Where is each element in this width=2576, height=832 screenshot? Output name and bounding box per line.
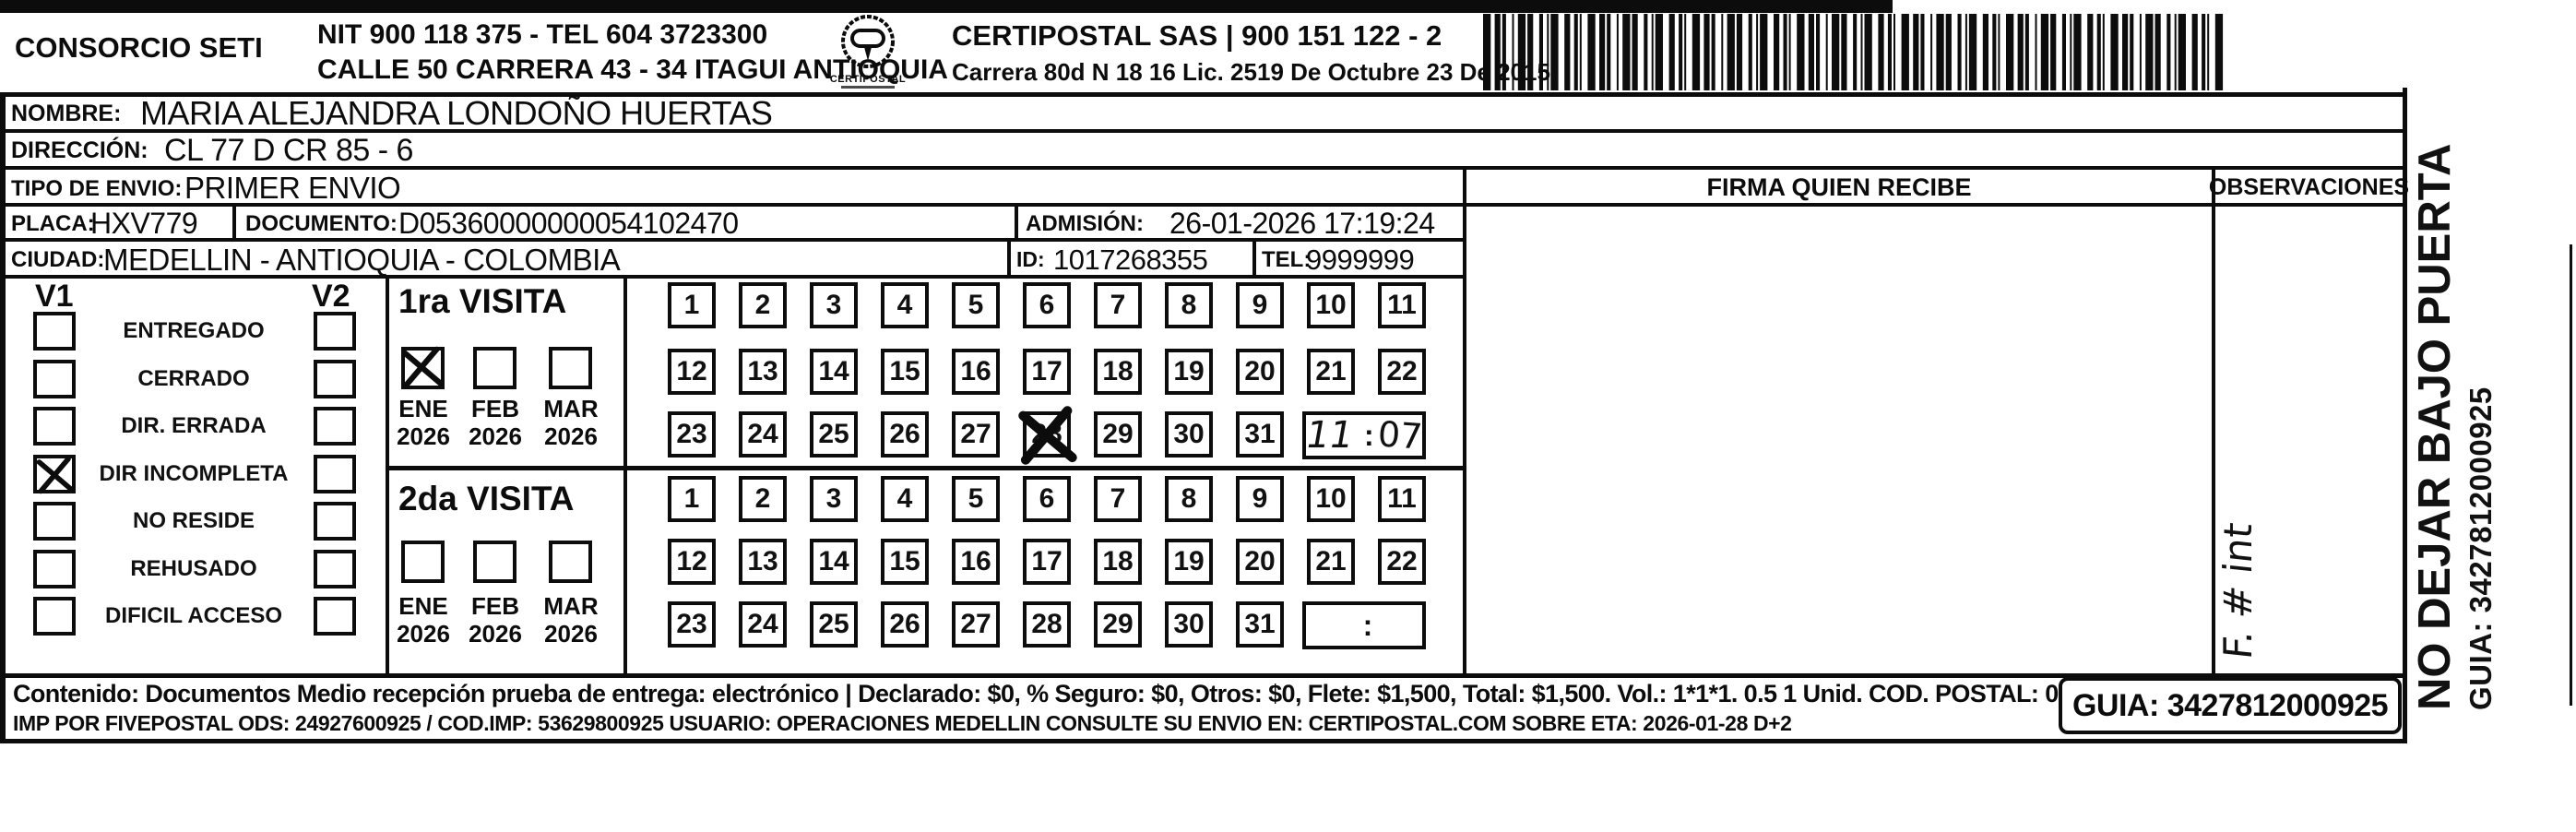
day-number: 23 [676,419,706,450]
day-number: 8 [1181,483,1197,515]
day-cell-14: 14 [810,349,858,395]
admision-value: 26-01-2026 17:19:24 [1169,207,1435,241]
day-number: 24 [747,419,778,450]
day-cell-16: 16 [952,349,1000,395]
status-option-label: DIR. ERRADA [83,413,304,439]
month-checkbox-mar [549,541,592,583]
status-option-label: REHUSADO [83,556,304,582]
day-cell-27: 27 [952,411,1000,458]
guia-number-box: GUIA: 3427812000925 [2059,677,2402,734]
status-checkbox-v1 [33,407,76,446]
day-number: 31 [1244,419,1275,450]
logo-text: CERTIPOSTAL [817,74,919,85]
day-number: 21 [1315,356,1346,387]
day-cell-31: 31 [1236,411,1284,458]
certipostal-logo: CERTIPOSTAL [817,13,919,89]
day-cell-21: 21 [1307,539,1355,585]
day-number: 27 [960,419,991,450]
day-cell-1: 1 [668,476,716,522]
day-number: 20 [1244,356,1275,387]
operator-name: CERTIPOSTAL SAS | 900 151 122 - 2 [952,19,1442,53]
day-cell-18: 18 [1094,349,1142,395]
day-cell-22: 22 [1378,349,1426,395]
visit-time-box: : [1302,601,1426,649]
month-checkbox-ene [401,541,445,583]
time-separator: : [1364,419,1374,453]
day-cell-26: 26 [881,411,929,458]
status-checkbox-v2 [314,455,356,493]
day-number: 22 [1386,546,1417,577]
day-cell-1: 1 [668,282,716,328]
day-number: 17 [1031,546,1062,577]
month-year-label: 2026 [458,620,532,648]
day-cell-22: 22 [1378,539,1426,585]
handwritten-hour: 11 [1302,414,1357,457]
day-number: 13 [747,546,778,577]
month-year-label: 2026 [386,422,460,451]
nombre-label: NOMBRE: [11,101,121,127]
month-name-label: MAR [534,592,608,621]
day-number: 20 [1244,546,1275,577]
day-number: 1 [684,483,700,515]
day-cell-25: 25 [810,601,858,648]
status-checkbox-v2 [314,550,356,588]
scan-edge-line [2570,244,2572,706]
documento-label: DOCUMENTO: [245,211,398,237]
day-cell-9: 9 [1236,476,1284,522]
day-cell-14: 14 [810,539,858,585]
day-number: 2 [755,290,771,321]
day-number: 28 [1031,419,1062,450]
status-checkbox-v1 [33,550,76,588]
day-number: 6 [1039,483,1055,515]
month-checkbox-feb [473,347,516,389]
month-name-label: FEB [458,592,532,621]
day-cell-12: 12 [668,349,716,395]
scan-top-bar [0,0,1893,13]
day-cell-4: 4 [881,476,929,522]
month-year-label: 2026 [534,620,608,648]
day-number: 5 [968,483,984,515]
day-number: 10 [1315,290,1346,321]
handwritten-x-mark [401,346,444,388]
status-checkbox-v1 [33,597,76,636]
day-cell-10: 10 [1307,476,1355,522]
direccion-label: DIRECCIÓN: [11,137,148,164]
day-cell-8: 8 [1165,476,1213,522]
status-checkbox-v1 [33,360,76,398]
day-cell-6: 6 [1023,282,1071,328]
handwritten-x-mark [35,456,76,494]
day-cell-20: 20 [1236,349,1284,395]
day-number: 25 [818,609,849,640]
day-cell-31: 31 [1236,601,1284,648]
day-number: 30 [1173,419,1204,450]
guia-number: GUIA: 3427812000925 [2072,688,2388,724]
day-number: 16 [960,546,991,577]
day-number: 29 [1102,609,1133,640]
second-visit-title: 2da VISITA [398,480,575,518]
day-number: 26 [889,419,920,450]
day-number: 8 [1181,290,1197,321]
id-value: 1017268355 [1053,244,1207,277]
day-number: 10 [1315,483,1346,515]
month-year-label: 2026 [458,422,532,451]
day-cell-11: 11 [1378,282,1426,328]
day-cell-11: 11 [1378,476,1426,522]
month-checkbox-ene [401,347,445,389]
status-checkbox-v1 [33,502,76,541]
day-cell-5: 5 [952,282,1000,328]
admision-label: ADMISIÓN: [1026,211,1144,237]
documento-value: D05360000000054102470 [398,207,739,241]
side-warning-text: NO DEJAR BAJO PUERTA [2409,51,2461,710]
month-checkbox-mar [549,347,592,389]
day-cell-5: 5 [952,476,1000,522]
day-cell-30: 30 [1165,411,1213,458]
day-cell-2: 2 [739,282,787,328]
direccion-value: CL 77 D CR 85 - 6 [164,133,413,169]
day-cell-26: 26 [881,601,929,648]
month-name-label: FEB [458,395,532,423]
day-number: 22 [1386,356,1417,387]
day-cell-20: 20 [1236,539,1284,585]
day-cell-15: 15 [881,349,929,395]
first-visit-title: 1ra VISITA [398,282,566,321]
status-option-label: CERRADO [83,366,304,392]
day-cell-29: 29 [1094,601,1142,648]
day-number: 12 [676,356,706,387]
day-cell-24: 24 [739,601,787,648]
ciudad-value: MEDELLIN - ANTIOQUIA - COLOMBIA [103,243,620,278]
day-cell-21: 21 [1307,349,1355,395]
first-visit-month-panel: 1ra VISITA ENE2026FEB2026MAR2026 [387,277,623,466]
day-cell-29: 29 [1094,411,1142,458]
operator-license: Carrera 80d N 18 16 Lic. 2519 De Octubre… [952,58,1550,87]
day-number: 23 [676,609,706,640]
day-number: 16 [960,356,991,387]
day-number: 21 [1315,546,1346,577]
time-separator: : [1363,609,1373,643]
day-number: 4 [897,290,913,321]
day-number: 14 [818,546,849,577]
second-visit-month-panel: 2da VISITA ENE2026FEB2026MAR2026 [387,470,623,673]
tel-label: TEL: [1262,247,1311,273]
first-visit-day-grid: 1234567891011121314151617181920212223242… [623,277,1466,466]
day-number: 9 [1252,290,1268,321]
nombre-value: MARIA ALEJANDRA LONDOÑO HUERTAS [140,94,772,133]
side-text-wrap: NO DEJAR BAJO PUERTA GUIA: 3427812000925 [2409,51,2509,710]
day-cell-19: 19 [1165,539,1213,585]
tel-value: 9999999 [1306,244,1414,277]
day-number: 14 [818,356,849,387]
day-cell-24: 24 [739,411,787,458]
day-cell-28: 28 [1023,411,1071,458]
side-guia-text: GUIA: 3427812000925 [2461,51,2501,710]
day-cell-30: 30 [1165,601,1213,648]
status-panel-rows: ENTREGADOCERRADODIR. ERRADADIR INCOMPLET… [6,277,386,673]
day-cell-13: 13 [739,539,787,585]
day-number: 15 [889,546,920,577]
company-name: CONSORCIO SETI [15,31,263,65]
status-checkbox-v2 [314,597,356,636]
day-number: 18 [1102,356,1133,387]
firma-signature-area [1466,207,2212,673]
month-checkbox-feb [473,541,516,583]
day-number: 5 [968,290,984,321]
day-cell-10: 10 [1307,282,1355,328]
day-cell-16: 16 [952,539,1000,585]
day-number: 30 [1173,609,1204,640]
barcode [1483,14,2233,90]
visit-time-box: 11:07 [1302,411,1426,459]
status-option-label: DIR INCOMPLETA [83,461,304,487]
handwritten-minute: 07 [1376,413,1423,457]
footer-content-line: Contenido: Documentos Medio recepción pr… [13,680,2125,708]
day-number: 24 [747,609,778,640]
day-cell-7: 7 [1094,476,1142,522]
firma-header: FIRMA QUIEN RECIBE [1466,172,2212,203]
day-number: 3 [826,290,842,321]
ciudad-label: CIUDAD: [11,247,104,273]
tipo-envio-label: TIPO DE ENVIO: [11,176,182,202]
day-cell-9: 9 [1236,282,1284,328]
status-checkbox-v1 [33,455,76,493]
status-checkbox-v2 [314,407,356,446]
placa-label: PLACA: [11,211,95,237]
day-number: 18 [1102,546,1133,577]
day-cell-12: 12 [668,539,716,585]
day-cell-7: 7 [1094,282,1142,328]
day-cell-17: 17 [1023,539,1071,585]
day-number: 6 [1039,290,1055,321]
day-cell-8: 8 [1165,282,1213,328]
day-number: 26 [889,609,920,640]
day-number: 19 [1173,546,1204,577]
day-number: 4 [897,483,913,515]
day-number: 29 [1102,419,1133,450]
day-cell-28: 28 [1023,601,1071,648]
month-name-label: ENE [386,592,460,621]
tipo-envio-value: PRIMER ENVIO [184,171,400,206]
day-number: 11 [1387,483,1417,515]
status-checkbox-v2 [314,312,356,351]
day-number: 25 [818,419,849,450]
month-name-label: MAR [534,395,608,423]
day-cell-25: 25 [810,411,858,458]
status-option-label: DIFICIL ACCESO [83,603,304,629]
day-number: 9 [1252,483,1268,515]
day-cell-19: 19 [1165,349,1213,395]
day-cell-15: 15 [881,539,929,585]
day-cell-23: 23 [668,601,716,648]
day-cell-2: 2 [739,476,787,522]
postal-horn-icon [836,13,900,74]
day-cell-6: 6 [1023,476,1071,522]
observaciones-handwritten-note: F. # int [2215,426,2271,662]
day-cell-4: 4 [881,282,929,328]
status-panel: V1 V2 ENTREGADOCERRADODIR. ERRADADIR INC… [6,277,386,673]
status-checkbox-v1 [33,312,76,351]
status-checkbox-v2 [314,360,356,398]
day-cell-27: 27 [952,601,1000,648]
day-cell-3: 3 [810,476,858,522]
day-number: 13 [747,356,778,387]
day-number: 7 [1110,483,1126,515]
day-cell-17: 17 [1023,349,1071,395]
month-year-label: 2026 [386,620,460,648]
day-number: 12 [676,546,706,577]
day-number: 15 [889,356,920,387]
day-cell-18: 18 [1094,539,1142,585]
day-cell-23: 23 [668,411,716,458]
month-name-label: ENE [386,395,460,423]
day-cell-3: 3 [810,282,858,328]
footer-imp-line: IMP POR FIVEPOSTAL ODS: 24927600925 / CO… [13,711,1792,736]
day-number: 11 [1387,290,1417,321]
day-cell-13: 13 [739,349,787,395]
observaciones-note-wrap: F. # int [2215,432,2271,662]
day-number: 1 [684,290,700,321]
logo-tagline-rule [841,86,895,89]
day-number: 7 [1110,290,1126,321]
observaciones-header: OBSERVACIONES [2215,172,2403,203]
month-year-label: 2026 [534,422,608,451]
status-checkbox-v2 [314,502,356,541]
second-visit-day-grid: 1234567891011121314151617181920212223242… [623,470,1466,673]
day-number: 19 [1173,356,1204,387]
day-number: 27 [960,609,991,640]
day-number: 31 [1244,609,1275,640]
day-number: 28 [1031,609,1062,640]
day-number: 17 [1031,356,1062,387]
placa-value: HXV779 [90,207,197,241]
status-option-label: ENTREGADO [83,318,304,344]
id-label: ID: [1016,247,1045,272]
day-number: 3 [826,483,842,515]
scanned-delivery-guide: CONSORCIO SETI NIT 900 118 375 - TEL 604… [0,0,2576,832]
day-number: 2 [755,483,771,515]
company-nit-tel: NIT 900 118 375 - TEL 604 3723300 [317,19,767,51]
status-option-label: NO RESIDE [83,508,304,534]
